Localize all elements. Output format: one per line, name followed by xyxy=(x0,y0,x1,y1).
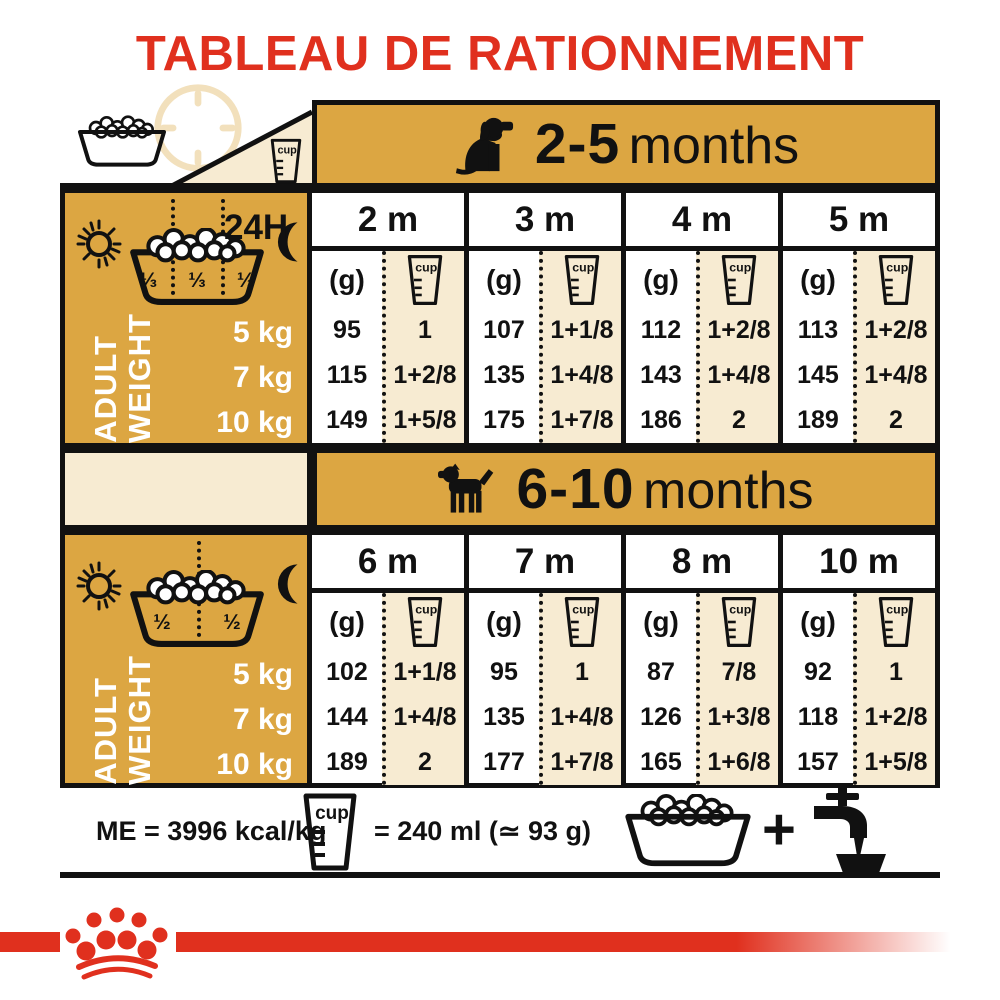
cups-value: 1+4/8 xyxy=(386,695,464,740)
cups-value: 1+3/8 xyxy=(700,695,778,740)
grams-subcolumn: (g) 102 144 189 xyxy=(312,593,382,785)
month-body: (g) 95 135 177 1 1+4/8 1+7/8 xyxy=(469,593,621,785)
grams-value: 118 xyxy=(783,695,853,740)
grams-value: 144 xyxy=(312,695,382,740)
month-header: 8 m xyxy=(626,535,778,593)
ration-grid-6-10-months: 6 m (g) 102 144 189 1+1/8 1+4/8 2 7 m xyxy=(312,530,940,788)
month-column: 3 m (g) 107 135 175 1+1/8 1+4/8 1+7/8 xyxy=(469,188,626,448)
weight-rows: 5 kg 7 kg 10 kg xyxy=(173,310,293,445)
cups-value: 1+6/8 xyxy=(700,740,778,785)
cups-value: 1+4/8 xyxy=(543,695,621,740)
dog-standing-icon xyxy=(438,462,496,516)
weight-label: 5 kg xyxy=(173,652,293,697)
measuring-cup-icon xyxy=(404,254,446,306)
cups-value: 7/8 xyxy=(700,650,778,695)
grams-unit-label: (g) xyxy=(469,251,539,308)
age-range: 6-10 xyxy=(516,457,634,521)
grams-value: 115 xyxy=(312,353,382,398)
measuring-cup-icon xyxy=(298,792,362,872)
metabolizable-energy-label: ME = 3996 kcal/kg xyxy=(96,816,326,847)
age-band-label: 6-10 months xyxy=(516,456,813,522)
grams-subcolumn: (g) 112 143 186 xyxy=(626,251,696,443)
cups-value: 1 xyxy=(543,650,621,695)
grams-value: 95 xyxy=(469,650,539,695)
sun-icon xyxy=(75,217,123,269)
age-range: 2-5 xyxy=(535,112,620,176)
bowl-fraction: ⅓ xyxy=(126,269,172,293)
cups-subcolumn: 7/8 1+3/8 1+6/8 xyxy=(696,593,778,785)
footer-red-bar-left xyxy=(0,932,60,952)
cups-subcolumn: 1 1+2/8 1+5/8 xyxy=(853,593,935,785)
footer-red-bar-right xyxy=(176,932,1000,952)
cups-subcolumn: 1 1+2/8 1+5/8 xyxy=(382,251,464,443)
month-column: 6 m (g) 102 144 189 1+1/8 1+4/8 2 xyxy=(312,530,469,788)
cups-subcolumn: 1+1/8 1+4/8 2 xyxy=(382,593,464,785)
month-header: 3 m xyxy=(469,193,621,251)
month-body: (g) 113 145 189 1+2/8 1+4/8 2 xyxy=(783,251,935,443)
ration-grid-2-5-months: 2 m (g) 95 115 149 1 1+2/8 1+5/8 3 m xyxy=(312,188,940,448)
month-body: (g) 92 118 157 1 1+2/8 1+5/8 xyxy=(783,593,935,785)
weight-label: 10 kg xyxy=(173,742,293,787)
moon-icon xyxy=(277,561,305,607)
cups-value: 1+1/8 xyxy=(543,308,621,353)
age-band-6-10-months: 6-10 months xyxy=(312,448,940,530)
grams-subcolumn: (g) 95 135 177 xyxy=(469,593,539,785)
sun-icon xyxy=(75,559,123,611)
month-body: (g) 107 135 175 1+1/8 1+4/8 1+7/8 xyxy=(469,251,621,443)
daily-ration-corner: 24H xyxy=(60,100,312,188)
cup-equivalence-label: = 240 ml (≃ 93 g) xyxy=(374,816,591,847)
month-body: (g) 102 144 189 1+1/8 1+4/8 2 xyxy=(312,593,464,785)
weight-label: 5 kg xyxy=(173,310,293,355)
month-column: 7 m (g) 95 135 177 1 1+4/8 1+7/8 xyxy=(469,530,626,788)
grams-subcolumn: (g) 87 126 165 xyxy=(626,593,696,785)
age-unit: months xyxy=(629,117,800,175)
grams-value: 165 xyxy=(626,740,696,785)
grams-value: 112 xyxy=(626,308,696,353)
cups-value: 1 xyxy=(857,650,935,695)
weight-label: 10 kg xyxy=(173,400,293,445)
grams-unit-label: (g) xyxy=(312,251,382,308)
age-unit: months xyxy=(643,462,814,520)
cups-value: 1+4/8 xyxy=(857,353,935,398)
cups-subcolumn: 1+2/8 1+4/8 2 xyxy=(696,251,778,443)
measuring-cup-icon xyxy=(718,596,760,648)
puppy-sitting-icon xyxy=(453,113,515,175)
measuring-cup-icon xyxy=(561,596,603,648)
adult-weight-label: ADULT WEIGHT xyxy=(89,303,157,443)
weight-label: 7 kg xyxy=(173,697,293,742)
bowl-fraction: ½ xyxy=(209,611,255,635)
grams-unit-label: (g) xyxy=(469,593,539,650)
grams-value: 189 xyxy=(783,398,853,443)
weight-label: 7 kg xyxy=(173,355,293,400)
food-bowl-icon xyxy=(616,794,760,868)
grams-value: 143 xyxy=(626,353,696,398)
grams-subcolumn: (g) 107 135 175 xyxy=(469,251,539,443)
month-body: (g) 87 126 165 7/8 1+3/8 1+6/8 xyxy=(626,593,778,785)
measuring-cup-icon xyxy=(875,254,917,306)
food-bowl-icon xyxy=(121,570,273,649)
bowl-fraction: ½ xyxy=(139,611,185,635)
bowl-fraction: ⅓ xyxy=(223,269,269,293)
grams-subcolumn: (g) 92 118 157 xyxy=(783,593,853,785)
month-body: (g) 95 115 149 1 1+2/8 1+5/8 xyxy=(312,251,464,443)
grams-unit-label: (g) xyxy=(312,593,382,650)
grams-value: 87 xyxy=(626,650,696,695)
cups-subcolumn: 1+1/8 1+4/8 1+7/8 xyxy=(539,251,621,443)
grams-value: 175 xyxy=(469,398,539,443)
grams-unit-label: (g) xyxy=(783,251,853,308)
cups-value: 1 xyxy=(386,308,464,353)
grams-value: 145 xyxy=(783,353,853,398)
grams-value: 113 xyxy=(783,308,853,353)
grams-value: 102 xyxy=(312,650,382,695)
age-band-2-5-months: 2-5 months xyxy=(312,100,940,188)
adult-weight-label: ADULT WEIGHT xyxy=(89,645,157,785)
grams-value: 92 xyxy=(783,650,853,695)
sidebar-6-10-months: ½ ½ ADULT WEIGHT 5 kg 7 kg 10 kg xyxy=(60,530,312,788)
weight-rows: 5 kg 7 kg 10 kg xyxy=(173,652,293,787)
grams-subcolumn: (g) 113 145 189 xyxy=(783,251,853,443)
grams-value: 157 xyxy=(783,740,853,785)
plus-sign: + xyxy=(762,796,796,863)
cups-value: 1+5/8 xyxy=(386,398,464,443)
month-body: (g) 112 143 186 1+2/8 1+4/8 2 xyxy=(626,251,778,443)
month-column: 10 m (g) 92 118 157 1 1+2/8 1+5/8 xyxy=(783,530,940,788)
cups-subcolumn: 1+2/8 1+4/8 2 xyxy=(853,251,935,443)
grams-unit-label: (g) xyxy=(626,593,696,650)
month-header: 4 m xyxy=(626,193,778,251)
cups-value: 1+7/8 xyxy=(543,740,621,785)
cups-value: 1+5/8 xyxy=(857,740,935,785)
measuring-cup-icon xyxy=(561,254,603,306)
age-band-label: 2-5 months xyxy=(535,111,799,177)
cups-value: 1+1/8 xyxy=(386,650,464,695)
cups-value: 1+2/8 xyxy=(857,308,935,353)
month-column: 4 m (g) 112 143 186 1+2/8 1+4/8 2 xyxy=(626,188,783,448)
grams-value: 149 xyxy=(312,398,382,443)
daily-24h-label: 24H xyxy=(224,208,288,248)
grams-unit-label: (g) xyxy=(626,251,696,308)
month-column: 5 m (g) 113 145 189 1+2/8 1+4/8 2 xyxy=(783,188,940,448)
cups-value: 1+2/8 xyxy=(857,695,935,740)
royal-canin-crown-logo xyxy=(58,906,176,986)
cups-value: 1+2/8 xyxy=(700,308,778,353)
grams-subcolumn: (g) 95 115 149 xyxy=(312,251,382,443)
grams-value: 177 xyxy=(469,740,539,785)
month-column: 8 m (g) 87 126 165 7/8 1+3/8 1+6/8 xyxy=(626,530,783,788)
cups-value: 1+4/8 xyxy=(700,353,778,398)
page-title: TABLEAU DE RATIONNEMENT xyxy=(0,26,1000,82)
food-bowl-icon xyxy=(72,114,172,170)
cups-value: 1+4/8 xyxy=(543,353,621,398)
month-header: 2 m xyxy=(312,193,464,251)
grams-value: 126 xyxy=(626,695,696,740)
measuring-cup-icon xyxy=(404,596,446,648)
grams-unit-label: (g) xyxy=(783,593,853,650)
grams-value: 135 xyxy=(469,353,539,398)
cups-value: 2 xyxy=(857,398,935,443)
cups-value: 1+7/8 xyxy=(543,398,621,443)
cups-subcolumn: 1 1+4/8 1+7/8 xyxy=(539,593,621,785)
sidebar-spacer-cell xyxy=(60,448,312,530)
water-tap-icon xyxy=(806,788,894,876)
bowl-halves-icon: ½ ½ xyxy=(121,541,273,649)
measuring-cup-icon xyxy=(875,596,917,648)
month-header: 5 m xyxy=(783,193,935,251)
grams-value: 95 xyxy=(312,308,382,353)
grams-value: 189 xyxy=(312,740,382,785)
month-header: 6 m xyxy=(312,535,464,593)
bowl-fraction: ⅓ xyxy=(174,269,220,293)
month-header: 10 m xyxy=(783,535,935,593)
cups-value: 2 xyxy=(386,740,464,785)
cups-value: 2 xyxy=(700,398,778,443)
cups-value: 1+2/8 xyxy=(386,353,464,398)
month-header: 7 m xyxy=(469,535,621,593)
bottom-divider-line xyxy=(60,872,940,878)
grams-value: 107 xyxy=(469,308,539,353)
feeding-table-page: TABLEAU DE RATIONNEMENT 24H 2-5 months ⅓… xyxy=(0,0,1000,1000)
measuring-cup-icon xyxy=(266,138,306,184)
measuring-cup-icon xyxy=(718,254,760,306)
grams-value: 186 xyxy=(626,398,696,443)
month-column: 2 m (g) 95 115 149 1 1+2/8 1+5/8 xyxy=(312,188,469,448)
grams-value: 135 xyxy=(469,695,539,740)
